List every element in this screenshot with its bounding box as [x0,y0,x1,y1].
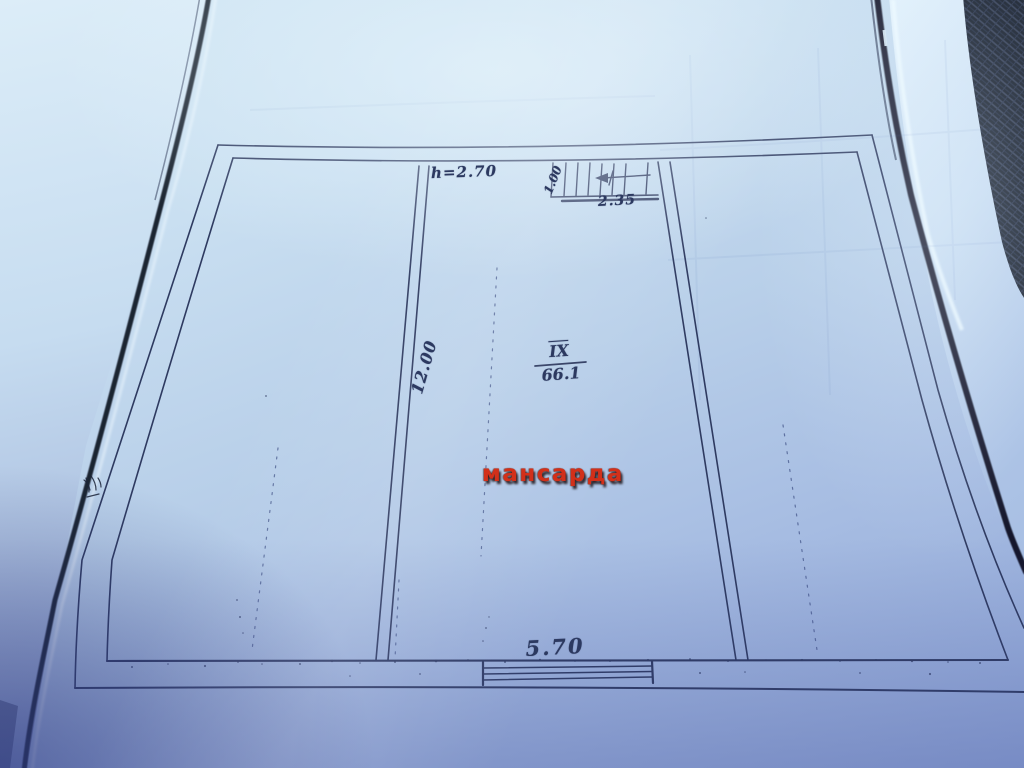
stair-direction-arrow [595,171,650,185]
floorplan [75,135,1024,692]
stair-run-label: 2.35 [598,192,637,210]
partition-right [658,162,748,660]
mansarda-stamp: мансарда [482,461,624,487]
partition-left [376,166,429,660]
paper-creases [250,40,1010,400]
floor-plan-drawing [0,0,1024,768]
room-area-label: 66.1 [541,363,581,385]
window-symbol [483,661,653,685]
ink-speckles [131,217,981,677]
room-width-label: 5.70 [525,633,585,661]
room-number-label: IX [548,341,569,361]
photo-of-floor-plan-page: h=2.70 1.00 2.35 IX 66.1 12.00 5.70 манс… [0,0,1024,768]
inner-wall [107,152,1008,661]
outer-wall [75,135,1024,692]
ceiling-height-label: h=2.70 [431,162,498,182]
